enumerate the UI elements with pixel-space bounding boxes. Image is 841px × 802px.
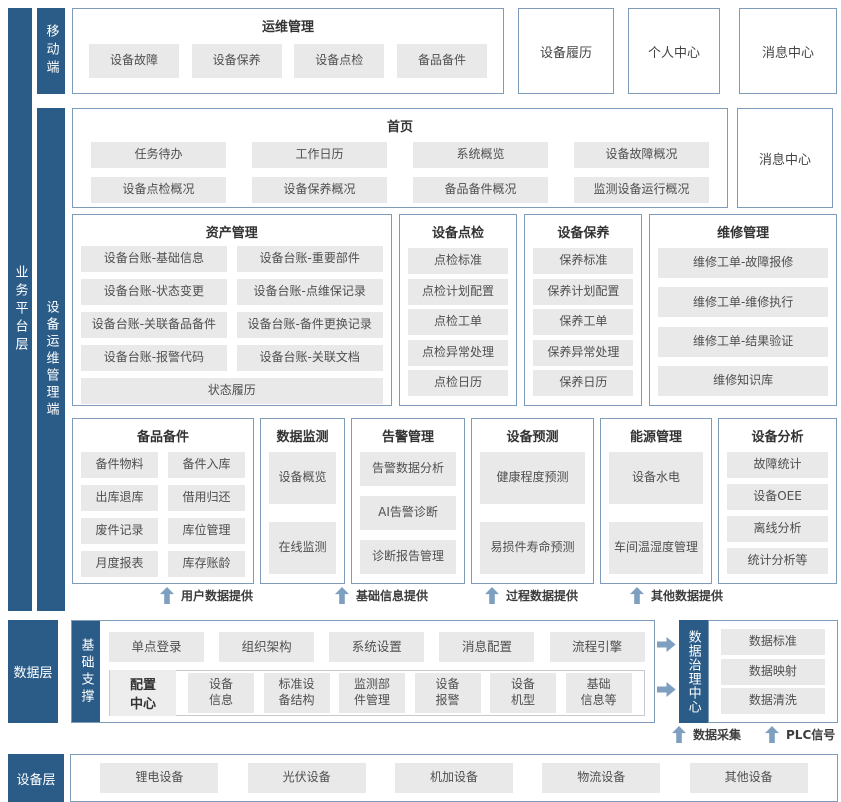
menu-item: 月度报表 <box>81 551 158 577</box>
repair-management-box: 维修管理 维修工单-故障报修 维修工单-维修执行 维修工单-结果验证 维修知识库 <box>649 214 837 406</box>
base-support-row1: 单点登录 组织架构 系统设置 消息配置 流程引擎 <box>109 632 645 662</box>
menu-item: 消息配置 <box>439 632 534 662</box>
data-flow-row: 用户数据提供 基础信息提供 过程数据提供 其他数据提供 <box>72 587 837 611</box>
data-monitor-box: 数据监测 设备概览 在线监测 <box>260 418 345 584</box>
right-arrow-icon <box>657 637 676 652</box>
menu-item: 其他设备 <box>690 763 808 793</box>
up-arrow-icon <box>672 726 686 743</box>
menu-item: 故障统计 <box>727 452 828 478</box>
asset-row: 资产管理 设备台账-基础信息 设备台账-重要部件 设备台账-状态变更 设备台账-… <box>72 214 837 406</box>
menu-item: 流程引擎 <box>550 632 645 662</box>
menu-item: 监测部 件管理 <box>339 673 405 713</box>
menu-item: 备品备件 <box>397 44 487 78</box>
message-center-box: 消息中心 <box>739 8 837 94</box>
menu-item: 维修工单-故障报修 <box>658 248 828 278</box>
flow-label: 基础信息提供 <box>356 587 428 604</box>
menu-item: 出库退库 <box>81 485 158 511</box>
collect-row: 数据采集 PLC信号 <box>8 726 838 750</box>
menu-item: 系统概览 <box>413 142 548 168</box>
inspection-box: 设备点检 点检标准 点检计划配置 点检工单 点检异常处理 点检日历 <box>399 214 518 406</box>
menu-item: 备品备件概况 <box>413 177 548 203</box>
flow-base-info: 基础信息提供 <box>335 587 428 604</box>
menu-item: 保养日历 <box>533 370 633 396</box>
menu-item: 点检计划配置 <box>408 279 509 305</box>
flow-user-data: 用户数据提供 <box>160 587 253 604</box>
data-governance-group: 数据治理中心 数据标准 数据映射 数据清洗 <box>679 620 838 723</box>
flow-plc-signal: PLC信号 <box>765 726 835 743</box>
ops-client-bar: 设备运维管理端 <box>37 108 65 611</box>
menu-item: 设备 报警 <box>415 673 481 713</box>
data-monitor-title: 数据监测 <box>261 419 344 450</box>
flow-label: 用户数据提供 <box>181 587 253 604</box>
alarm-management-box: 告警管理 告警数据分析 AI告警诊断 诊断报告管理 <box>351 418 465 584</box>
device-layer-box: 锂电设备 光伏设备 机加设备 物流设备 其他设备 <box>70 754 838 802</box>
menu-item: 组织架构 <box>219 632 314 662</box>
menu-item: 点检标准 <box>408 248 509 274</box>
menu-item: 健康程度预测 <box>480 452 585 504</box>
up-arrow-icon <box>485 587 499 604</box>
home-items: 任务待办 工作日历 系统概览 设备故障概况 设备点检概况 设备保养概况 备品备件… <box>73 140 727 203</box>
flow-label: 其他数据提供 <box>651 587 723 604</box>
menu-item: 设备点检 <box>294 44 384 78</box>
inspection-items: 点检标准 点检计划配置 点检工单 点检异常处理 点检日历 <box>400 246 517 405</box>
device-history-box: 设备履历 <box>518 8 614 94</box>
data-governance-bar: 数据治理中心 <box>679 620 708 723</box>
ops-management-box: 运维管理 设备故障 设备保养 设备点检 备品备件 <box>72 8 504 94</box>
menu-item: 设备故障概况 <box>574 142 709 168</box>
menu-item: 设备台账-基础信息 <box>81 246 227 272</box>
data-monitor-items: 设备概览 在线监测 <box>261 450 344 583</box>
home-title: 首页 <box>73 109 727 140</box>
menu-item: 物流设备 <box>542 763 660 793</box>
mobile-bar: 移动端 <box>37 8 65 94</box>
config-center-items: 设备 信息 标准设 备结构 监测部 件管理 设备 报警 设备 机型 基础 信息等 <box>188 673 632 713</box>
alarm-management-title: 告警管理 <box>352 419 464 450</box>
menu-item: 基础 信息等 <box>566 673 632 713</box>
config-center-strip: 配置 中心 设备 信息 标准设 备结构 监测部 件管理 设备 报警 设备 机型 … <box>109 670 645 716</box>
device-analysis-title: 设备分析 <box>719 419 836 450</box>
menu-item: 备件物料 <box>81 452 158 478</box>
base-support-box: 基础支撑 单点登录 组织架构 系统设置 消息配置 流程引擎 配置 中心 设备 信… <box>71 620 655 723</box>
data-layer: 数据层 基础支撑 单点登录 组织架构 系统设置 消息配置 流程引擎 配置 中心 … <box>8 620 838 723</box>
business-platform-layer-bar: 业务平台层 <box>8 8 32 611</box>
asset-management-title: 资产管理 <box>73 215 391 246</box>
flow-label: PLC信号 <box>786 726 835 743</box>
alarm-items: 告警数据分析 AI告警诊断 诊断报告管理 <box>352 450 464 583</box>
repair-management-title: 维修管理 <box>650 215 836 246</box>
menu-item: 设备台账-关联文档 <box>237 345 383 371</box>
menu-item: 数据映射 <box>721 659 825 685</box>
home-box: 首页 任务待办 工作日历 系统概览 设备故障概况 设备点检概况 设备保养概况 备… <box>72 108 728 208</box>
menu-item: 设备故障 <box>89 44 179 78</box>
menu-item: 标准设 备结构 <box>264 673 330 713</box>
device-predict-title: 设备预测 <box>472 419 593 450</box>
menu-item: 机加设备 <box>395 763 513 793</box>
menu-item: 设备台账-报警代码 <box>81 345 227 371</box>
upkeep-title: 设备保养 <box>525 215 641 246</box>
menu-item: 锂电设备 <box>100 763 218 793</box>
menu-item: 保养计划配置 <box>533 279 633 305</box>
menu-item: 数据清洗 <box>721 688 825 714</box>
menu-item: 易损件寿命预测 <box>480 522 585 574</box>
menu-item: 维修工单-维修执行 <box>658 287 828 317</box>
ops-management-title: 运维管理 <box>73 9 503 40</box>
home-section: 首页 任务待办 工作日历 系统概览 设备故障概况 设备点检概况 设备保养概况 备… <box>72 108 837 208</box>
menu-item: 设备台账-关联备品备件 <box>81 312 227 338</box>
menu-item: 设备保养概况 <box>252 177 387 203</box>
menu-item: 库位管理 <box>168 518 245 544</box>
flow-label: 过程数据提供 <box>506 587 578 604</box>
menu-item: 单点登录 <box>109 632 204 662</box>
menu-item: 设备 机型 <box>490 673 556 713</box>
ops-management-items: 设备故障 设备保养 设备点检 备品备件 <box>73 40 503 78</box>
menu-item: 状态履历 <box>81 378 383 404</box>
menu-item: 点检异常处理 <box>408 340 509 366</box>
business-platform-content: 移动端 运维管理 设备故障 设备保养 设备点检 备品备件 设备履历 个人中心 消… <box>37 8 837 611</box>
menu-item: 库存账龄 <box>168 551 245 577</box>
menu-item: 设备台账-重要部件 <box>237 246 383 272</box>
device-layer: 设备层 锂电设备 光伏设备 机加设备 物流设备 其他设备 <box>8 754 838 802</box>
menu-item: 保养标准 <box>533 248 633 274</box>
message-center-box: 消息中心 <box>737 108 833 208</box>
upkeep-box: 设备保养 保养标准 保养计划配置 保养工单 保养异常处理 保养日历 <box>524 214 642 406</box>
menu-item: 光伏设备 <box>248 763 366 793</box>
menu-item: 保养工单 <box>533 309 633 335</box>
inspection-title: 设备点检 <box>400 215 517 246</box>
menu-item: 设备台账-备件更换记录 <box>237 312 383 338</box>
upkeep-items: 保养标准 保养计划配置 保养工单 保养异常处理 保养日历 <box>525 246 641 405</box>
menu-item: 任务待办 <box>91 142 226 168</box>
energy-management-title: 能源管理 <box>601 419 711 450</box>
up-arrow-icon <box>160 587 174 604</box>
right-arrow-icon <box>657 682 676 697</box>
menu-item: 点检日历 <box>408 370 509 396</box>
menu-item: 备件入库 <box>168 452 245 478</box>
ops-client-content: 首页 任务待办 工作日历 系统概览 设备故障概况 设备点检概况 设备保养概况 备… <box>72 108 837 611</box>
base-support-bar: 基础支撑 <box>72 621 100 722</box>
menu-item: 设备OEE <box>727 484 828 510</box>
menu-item: 在线监测 <box>269 522 336 574</box>
architecture-diagram: 业务平台层 移动端 运维管理 设备故障 设备保养 设备点检 备品备件 设备履历 … <box>0 0 841 794</box>
menu-item: 废件记录 <box>81 518 158 544</box>
up-arrow-icon <box>765 726 779 743</box>
device-analysis-items: 故障统计 设备OEE 离线分析 统计分析等 <box>719 450 836 583</box>
device-layer-label: 设备层 <box>8 754 64 802</box>
spare-parts-items: 备件物料 备件入库 出库退库 借用归还 废件记录 库位管理 月度报表 库存账龄 <box>73 450 253 577</box>
flow-other-data: 其他数据提供 <box>630 587 723 604</box>
asset-management-box: 资产管理 设备台账-基础信息 设备台账-重要部件 设备台账-状态变更 设备台账-… <box>72 214 392 406</box>
menu-item: 点检工单 <box>408 309 509 335</box>
device-predict-box: 设备预测 健康程度预测 易损件寿命预测 <box>471 418 594 584</box>
flow-process-data: 过程数据提供 <box>485 587 578 604</box>
menu-item: 设备水电 <box>609 452 703 504</box>
menu-item: 设备点检概况 <box>91 177 226 203</box>
menu-item: 数据标准 <box>721 629 825 655</box>
asset-items: 设备台账-基础信息 设备台账-重要部件 设备台账-状态变更 设备台账-点维保记录… <box>73 246 391 371</box>
menu-item: 设备概览 <box>269 452 336 504</box>
up-arrow-icon <box>630 587 644 604</box>
menu-item: 告警数据分析 <box>360 452 456 486</box>
energy-management-box: 能源管理 设备水电 车间温湿度管理 <box>600 418 712 584</box>
menu-item: 借用归还 <box>168 485 245 511</box>
menu-item: 维修工单-结果验证 <box>658 327 828 357</box>
energy-items: 设备水电 车间温湿度管理 <box>601 450 711 583</box>
mobile-section: 移动端 运维管理 设备故障 设备保养 设备点检 备品备件 设备履历 个人中心 消… <box>37 8 837 94</box>
data-layer-label: 数据层 <box>8 620 58 723</box>
menu-item: 工作日历 <box>252 142 387 168</box>
up-arrow-icon <box>335 587 349 604</box>
menu-item: 车间温湿度管理 <box>609 522 703 574</box>
menu-item: 设备台账-状态变更 <box>81 279 227 305</box>
menu-item: 设备保养 <box>192 44 282 78</box>
business-platform-layer: 业务平台层 移动端 运维管理 设备故障 设备保养 设备点检 备品备件 设备履历 … <box>8 8 838 611</box>
menu-item: 设备 信息 <box>188 673 254 713</box>
menu-item: 诊断报告管理 <box>360 540 456 574</box>
spare-row: 备品备件 备件物料 备件入库 出库退库 借用归还 废件记录 库位管理 月度报表 … <box>72 418 837 584</box>
data-governance-box: 数据标准 数据映射 数据清洗 <box>708 620 838 723</box>
personal-center-box: 个人中心 <box>628 8 720 94</box>
menu-item: 监测设备运行概况 <box>574 177 709 203</box>
ops-client-section: 设备运维管理端 首页 任务待办 工作日历 系统概览 设备故障概况 设备点检概况 <box>37 108 837 611</box>
device-analysis-box: 设备分析 故障统计 设备OEE 离线分析 统计分析等 <box>718 418 837 584</box>
flow-data-collect: 数据采集 <box>672 726 741 743</box>
menu-item: AI告警诊断 <box>360 496 456 530</box>
config-center-label: 配置 中心 <box>110 670 176 716</box>
menu-item: 设备台账-点维保记录 <box>237 279 383 305</box>
menu-item: 保养异常处理 <box>533 340 633 366</box>
base-support-content: 单点登录 组织架构 系统设置 消息配置 流程引擎 配置 中心 设备 信息 标准设… <box>100 621 654 722</box>
menu-item: 维修知识库 <box>658 366 828 396</box>
spare-parts-box: 备品备件 备件物料 备件入库 出库退库 借用归还 废件记录 库位管理 月度报表 … <box>72 418 254 584</box>
menu-item: 系统设置 <box>329 632 424 662</box>
spare-parts-title: 备品备件 <box>73 419 253 450</box>
device-predict-items: 健康程度预测 易损件寿命预测 <box>472 450 593 583</box>
menu-item: 统计分析等 <box>727 548 828 574</box>
repair-items: 维修工单-故障报修 维修工单-维修执行 维修工单-结果验证 维修知识库 <box>650 246 836 405</box>
menu-item: 离线分析 <box>727 516 828 542</box>
governance-arrows <box>657 620 675 723</box>
flow-label: 数据采集 <box>693 726 741 743</box>
